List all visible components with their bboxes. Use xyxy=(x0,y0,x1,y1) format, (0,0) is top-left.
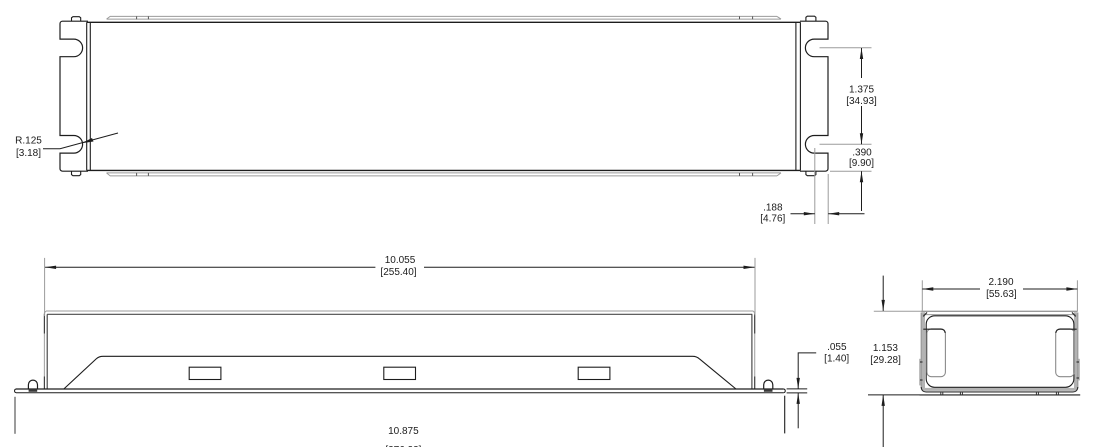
svg-text:1.375: 1.375 xyxy=(849,85,874,96)
svg-text:1.153: 1.153 xyxy=(873,343,898,354)
svg-text:.188: .188 xyxy=(763,203,783,214)
svg-text:[255.40]: [255.40] xyxy=(380,267,416,278)
svg-text:.390: .390 xyxy=(852,148,872,159)
svg-text:[29.28]: [29.28] xyxy=(870,355,901,366)
svg-text:R.125: R.125 xyxy=(15,136,42,147)
svg-text:[3.18]: [3.18] xyxy=(16,148,41,159)
svg-text:10.875: 10.875 xyxy=(388,426,419,437)
svg-text:.055: .055 xyxy=(827,342,847,353)
svg-text:[9.90]: [9.90] xyxy=(849,158,874,169)
svg-text:[34.93]: [34.93] xyxy=(846,96,877,107)
svg-text:[1.40]: [1.40] xyxy=(824,354,849,365)
svg-text:[55.63]: [55.63] xyxy=(986,289,1017,300)
svg-text:[4.76]: [4.76] xyxy=(760,213,785,224)
svg-text:2.190: 2.190 xyxy=(988,277,1013,288)
svg-text:10.055: 10.055 xyxy=(385,255,416,266)
